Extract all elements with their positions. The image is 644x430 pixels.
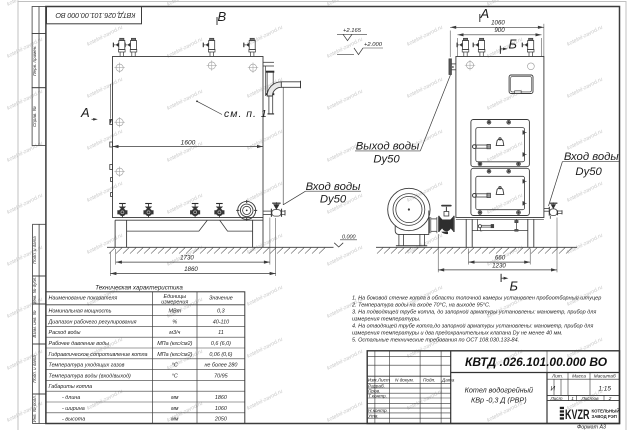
svg-text:0,06 (0,6): 0,06 (0,6) bbox=[209, 352, 232, 358]
svg-text:И: И bbox=[551, 386, 556, 393]
svg-text:kotelnii-zavod.ru: kotelnii-zavod.ru bbox=[246, 25, 284, 48]
svg-text:Диапазон рабочего регулировани: Диапазон рабочего регулирования bbox=[48, 319, 137, 325]
svg-text:1060: 1060 bbox=[215, 406, 227, 412]
svg-text:Расход воды: Расход воды bbox=[49, 330, 81, 336]
svg-text:Температура воды (вход/выход): Температура воды (вход/выход) bbox=[49, 373, 132, 379]
svg-text:Подп. и дата: Подп. и дата bbox=[32, 355, 37, 383]
svg-text:Изм.Лист: Изм.Лист bbox=[368, 377, 390, 382]
svg-text:660: 660 bbox=[495, 254, 506, 261]
svg-text:не более 280: не более 280 bbox=[204, 363, 237, 369]
svg-text:2. Температура воды на входе: 2. Температура воды на входе 70°С, на вы… bbox=[351, 302, 490, 308]
svg-text:МПа (кгс/см2): МПа (кгс/см2) bbox=[157, 352, 192, 358]
svg-text:1600: 1600 bbox=[181, 140, 196, 147]
svg-text:2: 2 bbox=[608, 396, 612, 401]
svg-text:3. На подводящей трубе котла,: 3. На подводящей трубе котла, до запорно… bbox=[352, 308, 596, 315]
svg-text:МВт: МВт bbox=[169, 309, 182, 315]
svg-text:2050: 2050 bbox=[214, 417, 227, 423]
svg-text:КВТД .026.101.00.000 ВО: КВТД .026.101.00.000 ВО bbox=[465, 357, 607, 369]
svg-text:Номинальная мощность: Номинальная мощность bbox=[49, 309, 112, 315]
svg-text:kotelnii-zavod.ru: kotelnii-zavod.ru bbox=[566, 25, 604, 48]
svg-text:%: % bbox=[172, 319, 177, 325]
svg-text:м3/ч: м3/ч bbox=[169, 330, 180, 336]
svg-text:0,3: 0,3 bbox=[217, 309, 225, 315]
svg-text:1. На боковой стенке котла в: 1. На боковой стенке котла в области топ… bbox=[352, 294, 601, 301]
svg-text:40-110: 40-110 bbox=[213, 319, 229, 325]
svg-text:ЗАВОД РЭП: ЗАВОД РЭП bbox=[592, 414, 617, 419]
svg-text:Рабочее давление воды: Рабочее давление воды bbox=[49, 341, 109, 347]
svg-text:Листов: Листов bbox=[580, 396, 599, 401]
svg-text:Dy50: Dy50 bbox=[575, 166, 602, 178]
svg-text:11: 11 bbox=[218, 330, 224, 336]
svg-text:kotelnii-zavod.ru: kotelnii-zavod.ru bbox=[6, 37, 44, 60]
svg-text:Dy50: Dy50 bbox=[373, 154, 400, 166]
svg-text:мм: мм bbox=[171, 395, 179, 401]
svg-text:мм: мм bbox=[171, 406, 179, 412]
svg-text:kotelnii-zavod.ru: kotelnii-zavod.ru bbox=[326, 37, 364, 60]
svg-text:Значение: Значение bbox=[209, 295, 233, 301]
svg-text:Утв.: Утв. bbox=[368, 413, 379, 418]
svg-text:А: А bbox=[480, 6, 490, 21]
svg-text:KVZR: KVZR bbox=[565, 407, 590, 422]
svg-text:измерения температуры и два пр: измерения температуры и два предохраните… bbox=[352, 330, 563, 336]
svg-text:1: 1 bbox=[571, 396, 574, 401]
svg-text:Габариты котла: Габариты котла bbox=[49, 384, 93, 390]
svg-text:- высота: - высота bbox=[62, 417, 85, 423]
svg-text:Инв. № подл.: Инв. № подл. bbox=[32, 395, 37, 422]
svg-text:А: А bbox=[80, 105, 90, 120]
svg-text:Подп. и дата: Подп. и дата bbox=[32, 236, 37, 264]
svg-text:°С: °С bbox=[172, 373, 178, 379]
svg-text:Котел водогрейный: Котел водогрейный bbox=[465, 386, 533, 395]
svg-text:Dy50: Dy50 bbox=[320, 194, 347, 206]
svg-text:измерения: измерения bbox=[161, 300, 188, 306]
svg-text:1060: 1060 bbox=[491, 20, 505, 27]
svg-text:Формат А3: Формат А3 bbox=[577, 424, 606, 430]
svg-text:Подп.: Подп. bbox=[423, 377, 435, 382]
svg-text:КОТЕЛЬНЫЙ: КОТЕЛЬНЫЙ bbox=[592, 409, 620, 414]
svg-text:Дата: Дата bbox=[441, 377, 455, 382]
svg-text:см. п. 1: см. п. 1 bbox=[224, 108, 268, 120]
svg-text:0,6 (6,0): 0,6 (6,0) bbox=[211, 341, 231, 347]
svg-text:Инв. № дубл.: Инв. № дубл. bbox=[32, 276, 37, 303]
svg-text:МПа (кгс/см2): МПа (кгс/см2) bbox=[157, 341, 192, 347]
svg-text:°С: °С bbox=[172, 363, 178, 369]
svg-text:Температура уходящих газов: Температура уходящих газов bbox=[49, 363, 125, 369]
svg-text:4. На отводящей трубе котла,д: 4. На отводящей трубе котла,до запорной … bbox=[352, 322, 593, 329]
svg-text:Справ. №: Справ. № bbox=[32, 106, 37, 127]
svg-text:1730: 1730 bbox=[180, 254, 194, 261]
svg-text:Лит.: Лит. bbox=[551, 374, 563, 379]
svg-text:КВТД.026.101.00.000 ВО: КВТД.026.101.00.000 ВО bbox=[55, 11, 135, 20]
svg-text:N докум.: N докум. bbox=[395, 377, 414, 382]
svg-text:1:15: 1:15 bbox=[598, 386, 611, 393]
svg-text:kotelnii-zavod.ru: kotelnii-zavod.ru bbox=[406, 25, 444, 48]
svg-text:Масштаб: Масштаб bbox=[594, 374, 616, 379]
svg-text:Б: Б bbox=[510, 279, 519, 294]
svg-text:Гидравлическое сопротивление к: Гидравлическое сопротивление котла bbox=[49, 352, 148, 358]
svg-text:70/95: 70/95 bbox=[214, 373, 228, 379]
svg-text:Б: Б bbox=[509, 36, 518, 51]
svg-text:мм: мм bbox=[171, 417, 179, 423]
svg-text:+2.165: +2.165 bbox=[343, 28, 362, 34]
svg-text:В: В bbox=[218, 9, 227, 24]
svg-text:- ширина: - ширина bbox=[62, 406, 85, 412]
svg-text:Лист: Лист bbox=[549, 396, 562, 401]
svg-text:Взам. инв. №: Взам. инв. № bbox=[32, 310, 37, 337]
svg-text:измерения температуры.: измерения температуры. bbox=[352, 316, 420, 322]
svg-text:1230: 1230 bbox=[492, 262, 506, 269]
svg-text:1860: 1860 bbox=[184, 266, 198, 273]
svg-text:Наименование показателя: Наименование показателя bbox=[49, 296, 118, 302]
svg-text:+2.000: +2.000 bbox=[364, 42, 383, 48]
svg-text:- длина: - длина bbox=[62, 395, 80, 401]
svg-text:Техническая характеристика: Техническая характеристика bbox=[95, 285, 183, 292]
svg-text:Перв. примен.: Перв. примен. bbox=[32, 45, 37, 76]
svg-text:Т.контр.: Т.контр. bbox=[368, 394, 387, 399]
svg-text:1860: 1860 bbox=[215, 395, 227, 401]
svg-text:900: 900 bbox=[494, 27, 505, 34]
svg-text:КВр -0,3 Д (РВР): КВр -0,3 Д (РВР) bbox=[471, 396, 527, 405]
svg-text:5. Остальные технические треб: 5. Остальные технические требования по О… bbox=[352, 337, 519, 343]
svg-text:Масса: Масса bbox=[572, 374, 586, 379]
svg-text:0.000: 0.000 bbox=[342, 234, 356, 240]
